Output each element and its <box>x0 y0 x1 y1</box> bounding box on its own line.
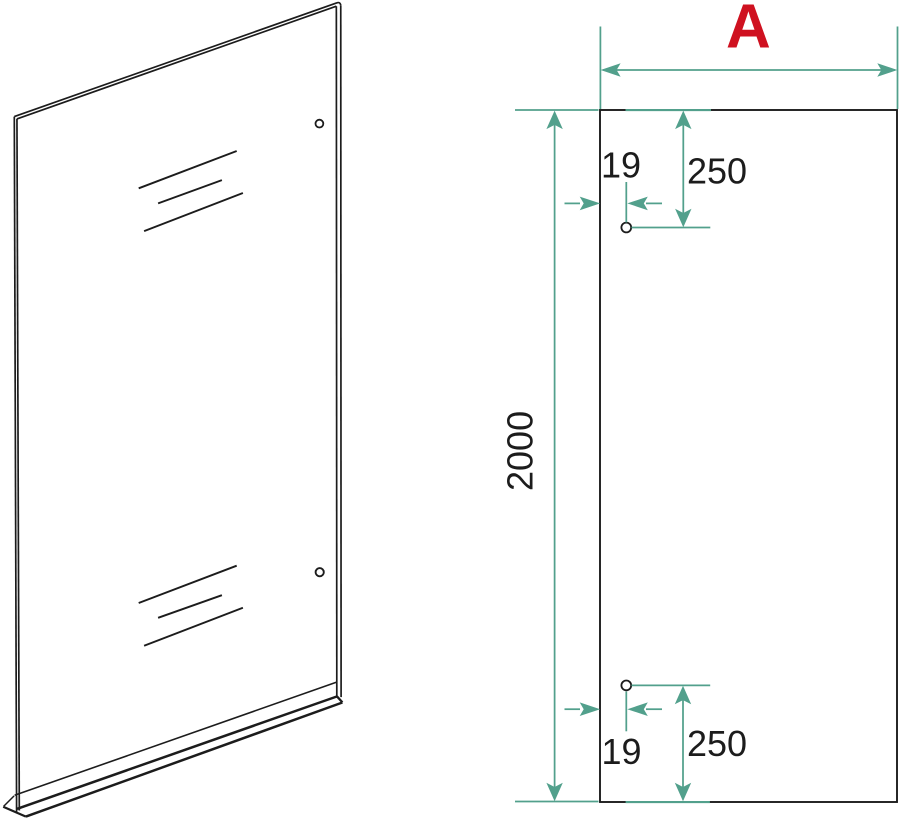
svg-text:250: 250 <box>687 151 747 192</box>
svg-text:A: A <box>726 0 771 62</box>
svg-text:19: 19 <box>601 145 641 186</box>
svg-text:19: 19 <box>602 731 642 772</box>
svg-text:250: 250 <box>687 723 747 764</box>
svg-text:2000: 2000 <box>500 411 541 491</box>
